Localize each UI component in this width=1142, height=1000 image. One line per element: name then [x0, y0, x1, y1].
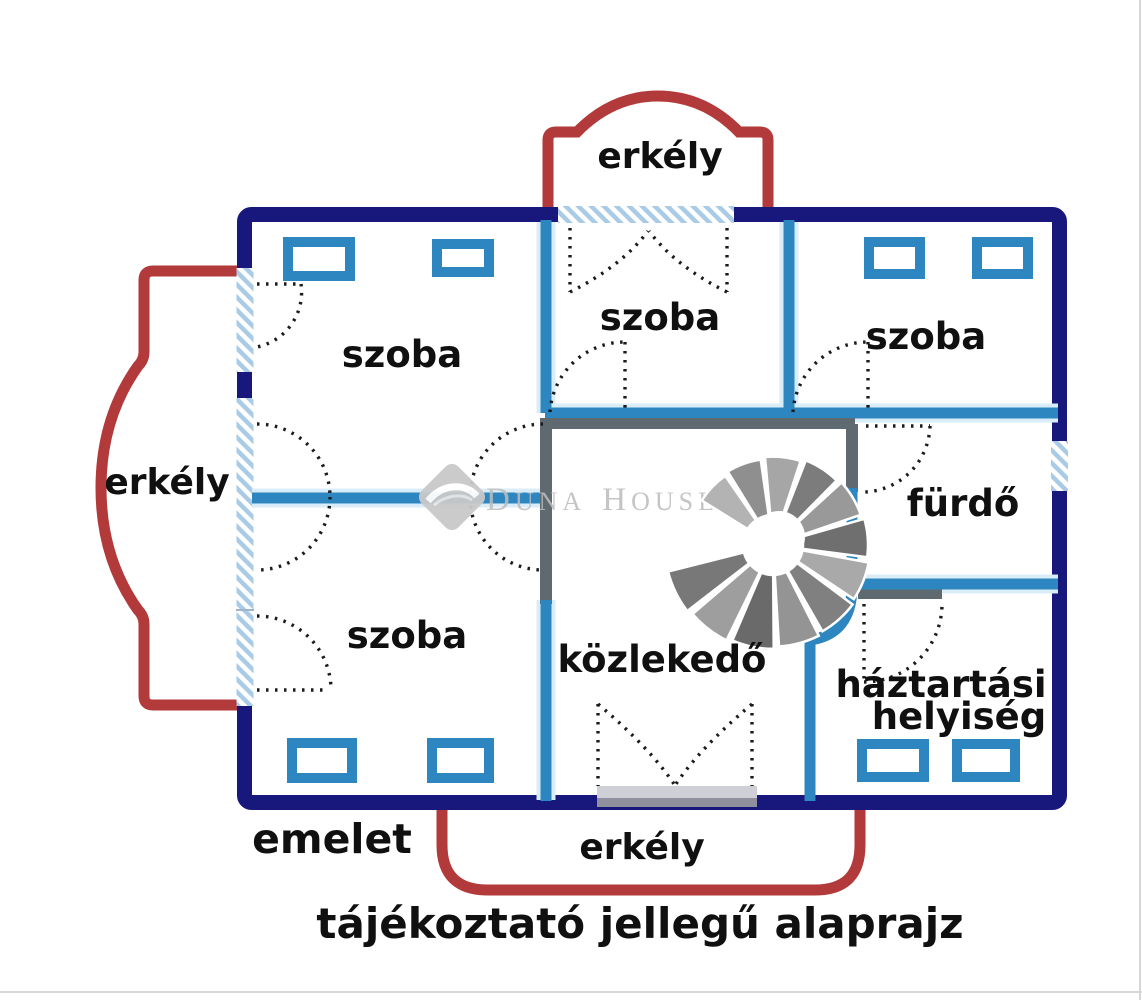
- floor-plan-drawing: DUNA HOUSE® szoba szoba szoba szoba fürd…: [0, 0, 1142, 1000]
- door-bottomleft-arc: [257, 616, 331, 690]
- label-caption: tájékoztató jellegű alaprajz: [316, 899, 963, 948]
- label-floor: emelet: [252, 815, 412, 863]
- window-utility-1: [862, 744, 924, 777]
- label-kozlekedo: közlekedő: [558, 638, 767, 681]
- door-top-balcony-right-arc: [649, 231, 727, 292]
- door-left-balcony-lower-arc: [257, 497, 330, 570]
- floor-plan-page: DUNA HOUSE® szoba szoba szoba szoba fürd…: [0, 0, 1142, 1000]
- balcony-door-threshold: [597, 786, 757, 807]
- window-topright-2: [977, 242, 1028, 274]
- french-door-left-lower: [237, 398, 254, 706]
- window-right-wall: [1051, 441, 1068, 491]
- watermark-text: DUNA HOUSE®: [486, 482, 735, 518]
- door-topleft-entry-arc: [257, 284, 302, 347]
- door-bottom-balcony-left-arc: [598, 704, 674, 784]
- label-szoba-bottom-left: szoba: [347, 614, 467, 657]
- label-balcony-bottom: erkély: [579, 827, 704, 868]
- door-left-balcony-upper-arc: [257, 424, 330, 497]
- window-utility-2: [957, 744, 1015, 777]
- window-bottomleft-2: [432, 743, 489, 778]
- duna-house-logo: [415, 460, 489, 534]
- window-topright-1: [869, 242, 920, 274]
- door-topright-arc: [793, 342, 868, 412]
- door-topmiddle-arc: [550, 342, 625, 412]
- wall-bathroom-left-gray: [846, 424, 858, 492]
- door-top-balcony-left-arc: [570, 231, 648, 292]
- label-balcony-left: erkély: [104, 462, 229, 503]
- window-topleft-1: [288, 242, 350, 276]
- utility-door-threshold: [858, 589, 942, 599]
- door-bottom-balcony-right-arc: [676, 704, 752, 784]
- label-furdo: fürdő: [907, 482, 1020, 525]
- label-szoba-top-middle: szoba: [600, 296, 720, 339]
- wall-hallway-top-gray: [549, 418, 855, 429]
- label-haztartasi-line2: helyiség: [872, 695, 1047, 738]
- french-door-left-upper: [237, 268, 254, 372]
- window-topleft-2: [437, 244, 489, 272]
- staircase-hub: [753, 511, 805, 563]
- label-szoba-top-left: szoba: [342, 333, 462, 376]
- window-bottomleft-1: [292, 743, 352, 778]
- french-door-top-balcony: [558, 206, 734, 223]
- label-balcony-top: erkély: [597, 136, 722, 177]
- label-szoba-top-right: szoba: [866, 315, 986, 358]
- duna-house-watermark: DUNA HOUSE®: [415, 460, 735, 534]
